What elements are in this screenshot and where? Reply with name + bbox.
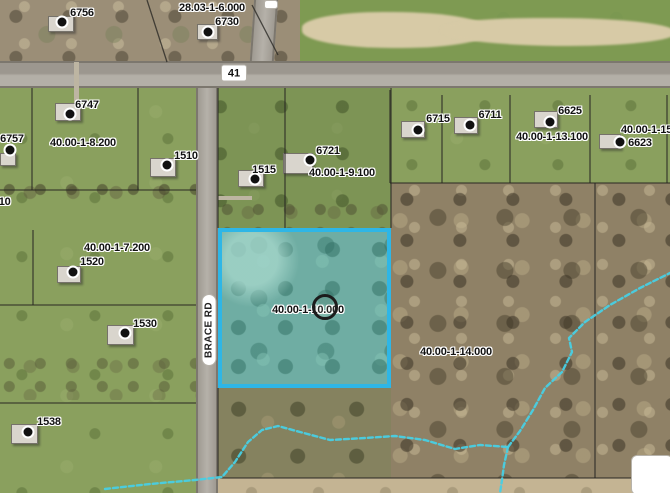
hedgerow — [0, 352, 196, 400]
driveway — [74, 62, 79, 106]
route-41-shield: 41 — [221, 65, 247, 82]
road-brace-rd — [196, 88, 218, 493]
hedgerow — [0, 178, 196, 204]
address-point-marker — [546, 118, 555, 127]
driveway — [218, 196, 252, 200]
route-41-label: 41 — [228, 67, 240, 79]
selected-parcel-ring-marker — [312, 294, 338, 320]
address-point-marker — [69, 268, 78, 277]
blank-label-bottom-right — [631, 455, 670, 493]
address-point-marker — [121, 329, 130, 338]
address-point-marker — [58, 18, 67, 27]
address-point-marker — [616, 138, 625, 147]
address-point-marker — [414, 126, 423, 135]
hedgerow — [218, 198, 400, 228]
address-point-marker — [251, 175, 260, 184]
map-canvas[interactable]: 675628.03-1-6.00067306747675740.00-1-8.2… — [0, 0, 670, 493]
brace-rd-label: BRACE RD — [202, 294, 217, 366]
address-point-marker — [466, 121, 475, 130]
terrain-bottom-field — [218, 478, 670, 493]
terrain-right-woods — [391, 183, 670, 478]
highlighted-parcel[interactable] — [218, 228, 391, 388]
house-footprint — [0, 153, 16, 166]
address-point-marker — [66, 110, 75, 119]
terrain-below-parcel — [218, 388, 391, 478]
road-route-41 — [0, 61, 670, 88]
partial-label-top-edge — [264, 0, 278, 9]
address-point-marker — [306, 156, 315, 165]
terrain-right-lots — [390, 88, 670, 183]
road-stub-north — [250, 0, 279, 65]
address-point-marker — [204, 28, 213, 37]
address-point-marker — [24, 428, 33, 437]
address-point-marker — [163, 161, 172, 170]
address-point-marker — [6, 146, 15, 155]
